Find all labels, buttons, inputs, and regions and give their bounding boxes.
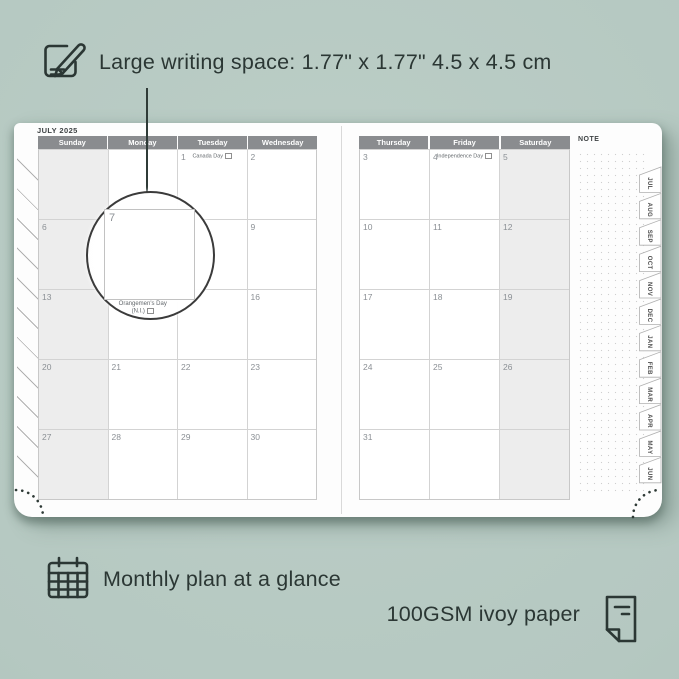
day-number: 6: [42, 222, 47, 232]
calendar-grid-icon: [44, 554, 92, 602]
day-number: 20: [42, 362, 51, 372]
holiday-label: Independence Day: [430, 153, 499, 160]
tab-label-jun: JUN: [646, 467, 652, 480]
day-number: 24: [363, 362, 372, 372]
day-number: 23: [251, 362, 260, 372]
tab-label-oct: OCT: [646, 256, 652, 270]
calendar-cell: 30: [248, 430, 317, 499]
calendar-cell: 31: [360, 430, 429, 499]
callout-line: [146, 88, 148, 192]
day-number: 26: [503, 362, 512, 372]
left-page-calendar: SundayMondayTuesdayWednesday 1Canada Day…: [38, 136, 317, 500]
calendar-cell: 29: [178, 430, 247, 499]
calendar-cell: 21: [109, 360, 178, 429]
calendar-cell: 9: [248, 220, 317, 289]
holiday-flag-icon: [485, 153, 492, 159]
calendar-cell: 23: [248, 360, 317, 429]
day-header: Thursday: [359, 136, 428, 149]
calendar-cell: 5: [500, 150, 569, 219]
day-number: 29: [181, 432, 190, 442]
calendar-cell: 26: [500, 360, 569, 429]
calendar-cell: 27: [39, 430, 108, 499]
calendar-cell: 3: [360, 150, 429, 219]
spine-crease: [341, 126, 342, 514]
holiday-label: Orangemen's Day(N.I.): [109, 301, 178, 316]
calendar-cell: [39, 150, 108, 219]
page-edge-hatching: [17, 153, 40, 485]
day-number: 10: [363, 222, 372, 232]
calendar-cell: 10: [360, 220, 429, 289]
day-number: 2: [251, 152, 256, 162]
calendar-cell: [500, 430, 569, 499]
magnified-day-number: 7: [109, 212, 115, 224]
month-tab-strip: JULAUGSEPOCTNOVDECJANFEBMARAPRMAYJUN: [639, 166, 662, 487]
day-header-row: SundayMondayTuesdayWednesday: [38, 136, 317, 149]
day-number: 19: [503, 292, 512, 302]
tab-label-sep: SEP: [646, 230, 652, 243]
pencil-note-icon: [40, 34, 90, 84]
planner-product-image: Large writing space: 1.77" x 1.77" 4.5 x…: [0, 0, 679, 679]
day-number: 16: [251, 292, 260, 302]
top-annotation-text: Large writing space: 1.77" x 1.77" 4.5 x…: [99, 50, 552, 75]
day-number: 22: [181, 362, 190, 372]
day-number: 30: [251, 432, 260, 442]
calendar-cell: 12: [500, 220, 569, 289]
calendar-cell: 19: [500, 290, 569, 359]
tab-label-mar: MAR: [646, 387, 652, 402]
calendar-cell: 4Independence Day: [430, 150, 499, 219]
day-number: 5: [503, 152, 508, 162]
calendar-cell: 16: [248, 290, 317, 359]
tab-label-nov: NOV: [646, 282, 652, 296]
day-number: 31: [363, 432, 372, 442]
calendar-cell: 20: [39, 360, 108, 429]
calendar-cell: 17: [360, 290, 429, 359]
day-number: 9: [251, 222, 256, 232]
calendar-cell: 18: [430, 290, 499, 359]
calendar-cell: 2: [248, 150, 317, 219]
tab-label-aug: AUG: [646, 203, 652, 218]
day-header: Wednesday: [248, 136, 317, 149]
holiday-flag-icon: [147, 308, 154, 314]
calendar-cell: 28: [109, 430, 178, 499]
day-number: 3: [363, 152, 368, 162]
day-header: Sunday: [38, 136, 107, 149]
bottom-right-annotation-text: 100GSM ivoy paper: [387, 602, 580, 627]
holiday-label: Canada Day: [178, 153, 247, 160]
tab-label-jul: JUL: [646, 177, 652, 190]
calendar-cell: 11: [430, 220, 499, 289]
calendar-cell: [430, 430, 499, 499]
bottom-left-annotation-text: Monthly plan at a glance: [103, 567, 341, 592]
calendar-cell: 14Orangemen's Day(N.I.): [109, 290, 178, 359]
tab-label-apr: APR: [646, 414, 652, 428]
day-header: Saturday: [501, 136, 570, 149]
note-label: NOTE: [578, 136, 599, 143]
paper-icon: [596, 592, 646, 646]
tab-label-jan: JAN: [646, 335, 652, 348]
tab-label-dec: DEC: [646, 309, 652, 323]
calendar-cell: 13: [39, 290, 108, 359]
day-header-row: ThursdayFridaySaturday: [359, 136, 570, 149]
calendar-cell: 22: [178, 360, 247, 429]
month-title: JULY 2025: [37, 126, 78, 135]
calendar-grid: 34Independence Day510111217181924252631: [359, 149, 570, 500]
tab-label-may: MAY: [646, 441, 652, 455]
day-number: 25: [433, 362, 442, 372]
note-dot-grid: [577, 151, 648, 495]
magnified-day-cell: 7: [104, 209, 195, 300]
day-number: 21: [112, 362, 121, 372]
tab-label-feb: FEB: [646, 362, 652, 375]
day-number: 27: [42, 432, 51, 442]
right-page-calendar: ThursdayFridaySaturday 34Independence Da…: [359, 136, 570, 500]
calendar-cell: 24: [360, 360, 429, 429]
day-number: 11: [433, 222, 442, 232]
day-number: 28: [112, 432, 121, 442]
day-header: Monday: [108, 136, 177, 149]
holiday-flag-icon: [225, 153, 232, 159]
calendar-cell: 25: [430, 360, 499, 429]
day-number: 12: [503, 222, 512, 232]
planner-spread: JULY 2025 SundayMondayTuesdayWednesday 1…: [14, 123, 662, 517]
day-header: Tuesday: [178, 136, 247, 149]
day-number: 13: [42, 292, 51, 302]
day-number: 18: [433, 292, 442, 302]
day-header: Friday: [430, 136, 499, 149]
day-number: 17: [363, 292, 372, 302]
